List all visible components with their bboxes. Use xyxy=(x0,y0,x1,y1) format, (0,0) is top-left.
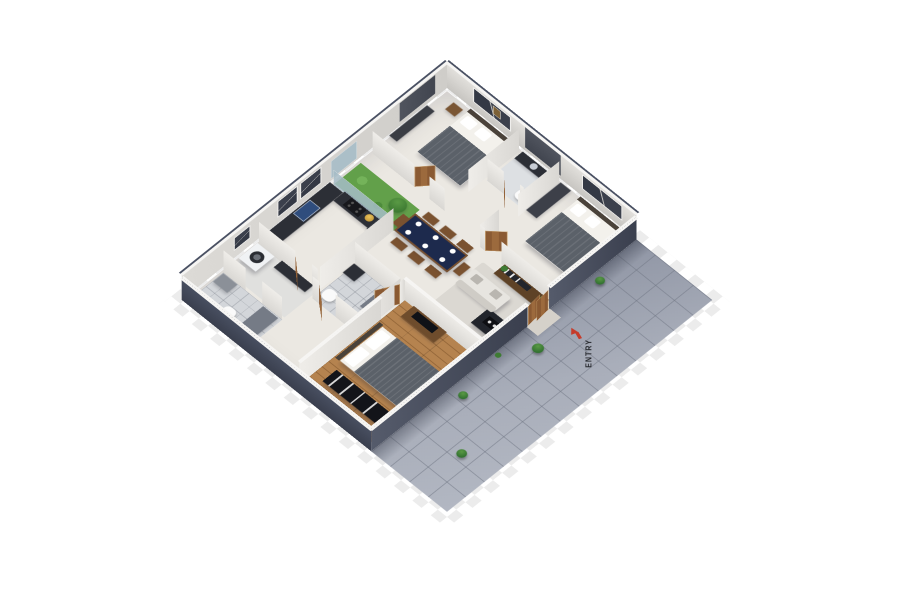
utility-window-icon xyxy=(234,225,251,251)
isometric-scene: ENTRY xyxy=(182,88,713,512)
floor-plan-render: ENTRY xyxy=(0,0,900,600)
entry-label: ENTRY xyxy=(583,336,593,368)
master-west-wall-a xyxy=(400,278,405,304)
